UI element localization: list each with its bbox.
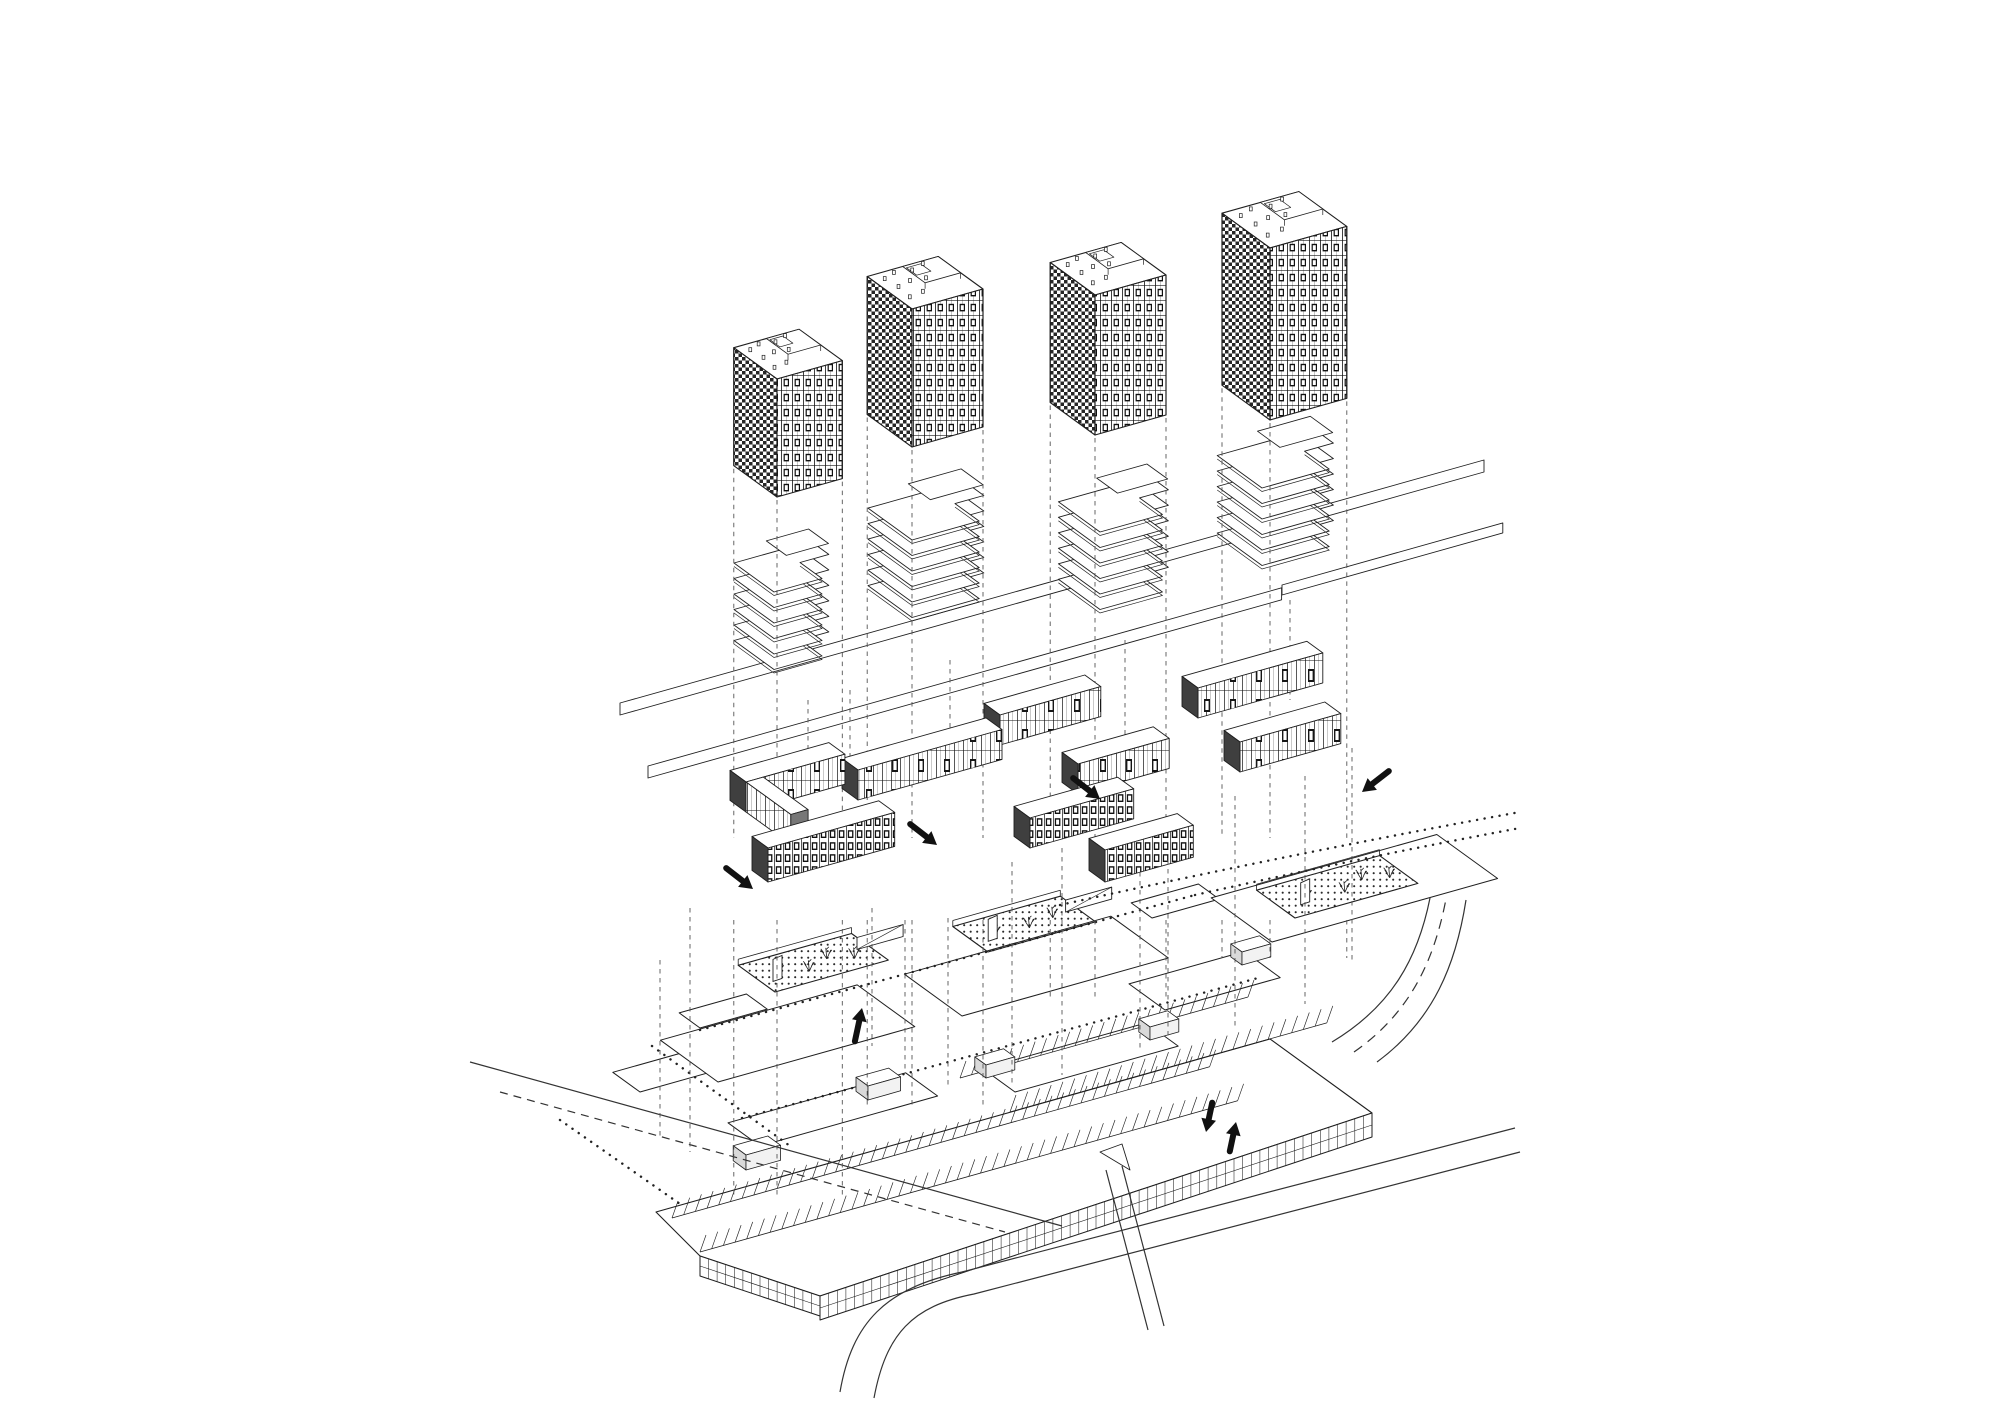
diagram-canvas	[0, 0, 2000, 1414]
exploded-axonometric-diagram	[0, 0, 2000, 1414]
